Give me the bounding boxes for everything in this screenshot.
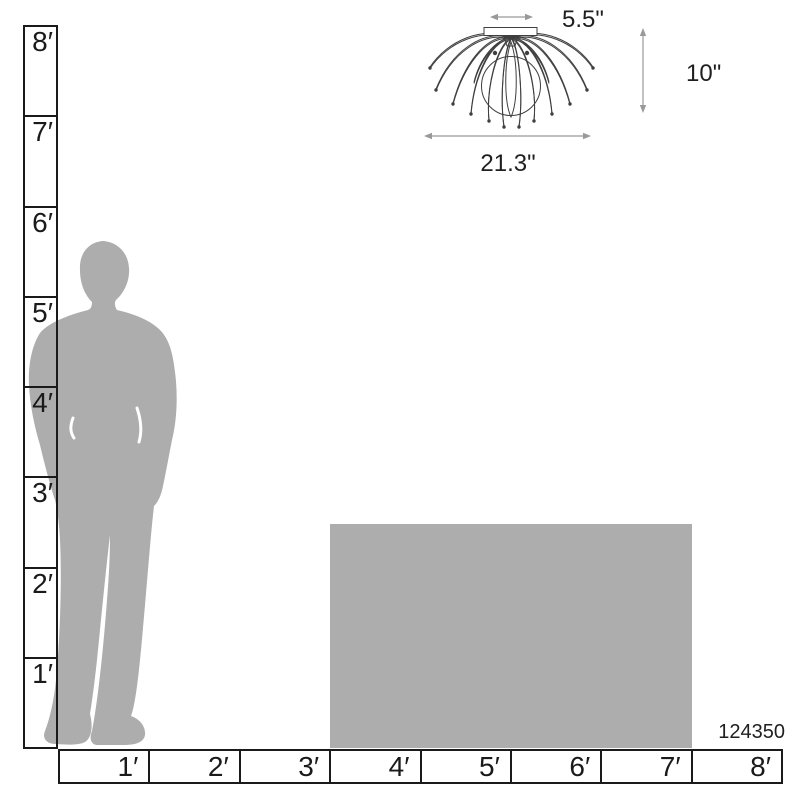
horizontal-ruler-cell: 7′ [602,751,692,782]
horizontal-ruler-cell: 6′ [512,751,602,782]
product-sku: 124350 [645,722,785,742]
canopy-width-value: 5.5" [562,8,604,32]
fixture-height-value: 10" [686,62,721,86]
horizontal-ruler-label: 5′ [479,753,500,781]
horizontal-ruler-cell: 1′ [60,751,150,782]
vertical-ruler-label: 6′ [32,207,53,238]
canopy-width-arrow [490,14,533,20]
horizontal-ruler-label: 4′ [389,753,410,781]
vertical-ruler-label: 4′ [32,387,53,418]
horizontal-ruler-cell: 5′ [422,751,512,782]
horizontal-ruler-label: 8′ [750,753,771,781]
fixture-arms [430,33,593,126]
vertical-feet-ruler: 8′ 7′ 6′ 5′ 4′ 3′ 2′ 1′ [23,25,58,749]
horizontal-ruler-cell: 3′ [241,751,331,782]
vertical-ruler-cell: 8′ [25,27,56,117]
horizontal-ruler-cell: 2′ [150,751,240,782]
vertical-ruler-cell: 6′ [25,208,56,298]
ceiling-light-line-drawing [428,28,594,129]
fixture-width-arrow [424,133,591,139]
horizontal-ruler-cell: 4′ [331,751,421,782]
arm-tip-dots [428,66,594,128]
table-scale-block-icon [330,524,692,748]
vertical-ruler-label: 2′ [32,568,53,599]
vertical-ruler-label: 7′ [32,116,53,147]
vertical-ruler-cell: 2′ [25,569,56,659]
scale-diagram: 8′ 7′ 6′ 5′ 4′ 3′ 2′ 1′ 1′ 2′ 3′ 4′ 5′ 6… [0,0,800,800]
vertical-ruler-cell: 5′ [25,298,56,388]
fixture-arms-outline [430,35,593,128]
fixture-width-value: 21.3" [450,152,566,176]
fixture-canopy [484,28,537,36]
fixture-joint-left [493,51,497,55]
vertical-ruler-label: 8′ [32,26,53,57]
fixture-joint-right [525,51,529,55]
vertical-ruler-label: 1′ [32,658,53,689]
vertical-ruler-label: 3′ [32,477,53,508]
vertical-ruler-label: 5′ [32,297,53,328]
fixture-petal [506,42,517,117]
horizontal-ruler-label: 6′ [569,753,590,781]
horizontal-ruler-label: 1′ [118,753,139,781]
vertical-ruler-cell: 3′ [25,478,56,568]
height-arrow [640,28,646,113]
vertical-ruler-cell: 7′ [25,117,56,207]
horizontal-feet-ruler: 1′ 2′ 3′ 4′ 5′ 6′ 7′ 8′ [58,749,783,784]
diagram-canvas [0,0,800,800]
horizontal-ruler-label: 7′ [660,753,681,781]
vertical-ruler-cell: 1′ [25,659,56,747]
vertical-ruler-cell: 4′ [25,388,56,478]
horizontal-ruler-label: 3′ [298,753,319,781]
horizontal-ruler-cell: 8′ [693,751,781,782]
horizontal-ruler-label: 2′ [208,753,229,781]
